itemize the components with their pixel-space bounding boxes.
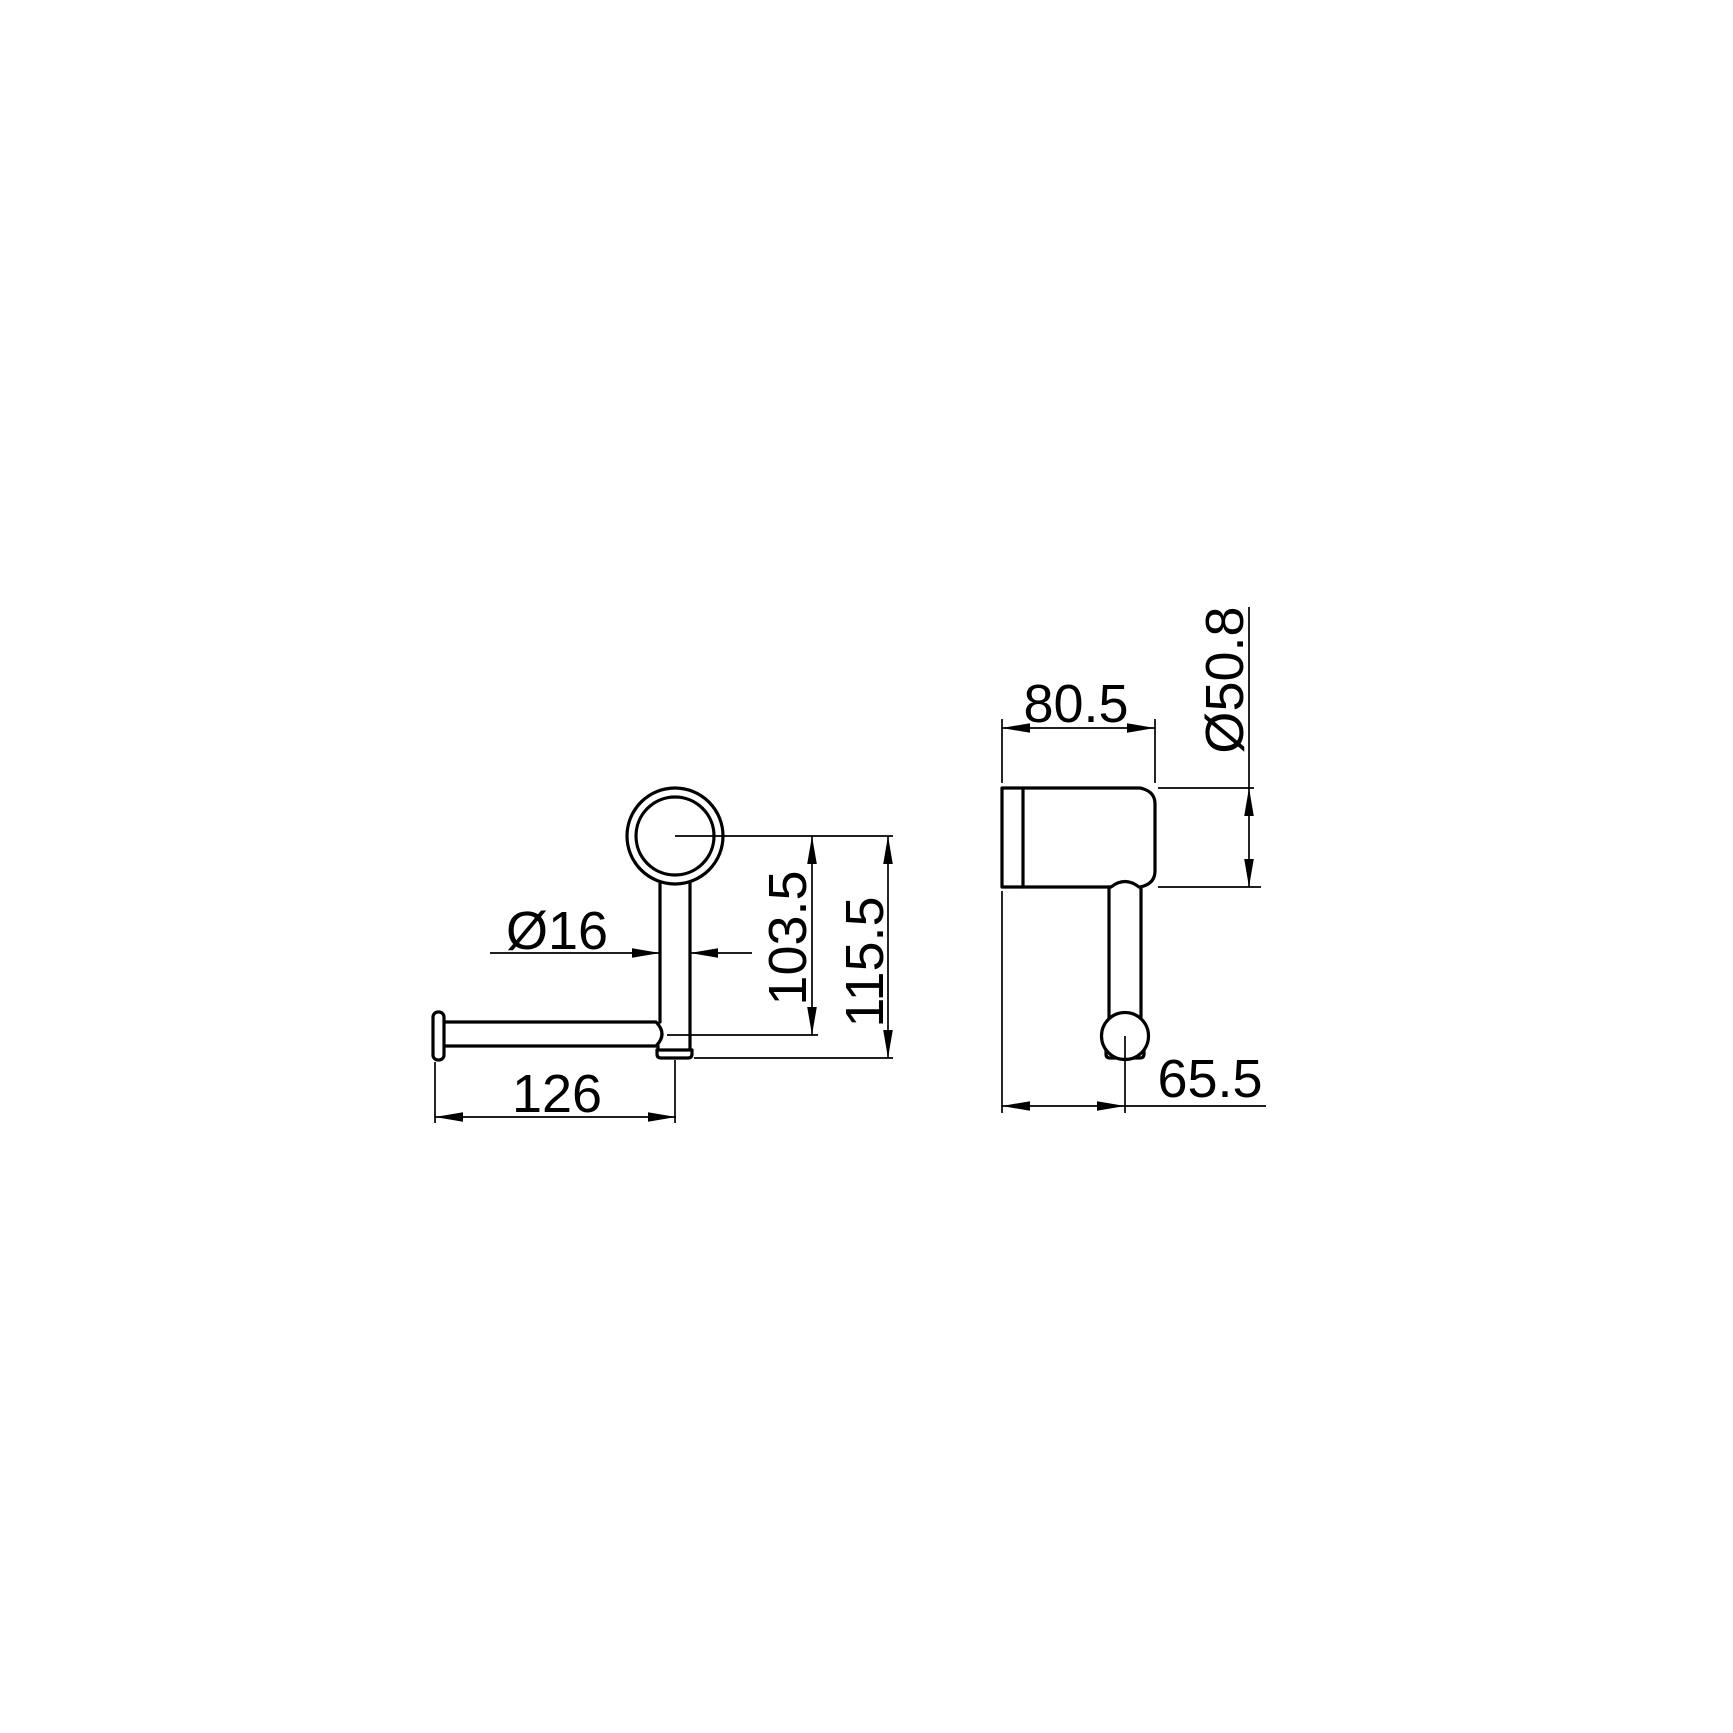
dim-wall-to-bar-axis: 65.5 bbox=[1002, 891, 1266, 1113]
arrowhead-left bbox=[435, 1112, 463, 1122]
dim-depth: 80.5 bbox=[1002, 674, 1155, 783]
arrowhead-down bbox=[883, 1030, 893, 1058]
dim-post-diameter: Ø16 bbox=[490, 901, 752, 961]
technical-drawing: Ø16 103.5 115.5 bbox=[0, 0, 1733, 1733]
dim-label-depth: 80.5 bbox=[1023, 674, 1128, 734]
drawing-canvas: Ø16 103.5 115.5 bbox=[0, 0, 1733, 1733]
arrowhead-up bbox=[883, 836, 893, 864]
dim-label-center-to-bar: 103.5 bbox=[758, 870, 818, 1005]
roll-bar bbox=[444, 1022, 662, 1046]
holder-body bbox=[1002, 788, 1155, 887]
dim-plate-diameter: Ø50.8 bbox=[1158, 606, 1261, 887]
dim-label-plate-diameter: Ø50.8 bbox=[1195, 606, 1255, 753]
arrowhead-down bbox=[1244, 859, 1254, 887]
arrowhead-down bbox=[807, 1007, 817, 1035]
side-view: 80.5 Ø50.8 65.5 bbox=[1002, 606, 1266, 1113]
post-bottom-collar bbox=[657, 1050, 692, 1058]
arrowhead-right bbox=[648, 1112, 676, 1122]
arrowhead-up bbox=[1244, 788, 1254, 816]
arrowhead-left bbox=[1002, 1101, 1030, 1111]
dim-label-wall-to-bar-axis: 65.5 bbox=[1157, 1049, 1262, 1109]
bar-end-cap bbox=[433, 1012, 444, 1060]
arrowhead-right bbox=[1127, 723, 1155, 733]
dim-label-post-diameter: Ø16 bbox=[506, 901, 608, 961]
arrowhead-left bbox=[690, 948, 718, 958]
dim-label-center-to-bottom: 115.5 bbox=[835, 896, 895, 1027]
dim-label-bar-length: 126 bbox=[512, 1064, 602, 1124]
dim-bar-length: 126 bbox=[435, 1060, 676, 1124]
arrowhead-right bbox=[1097, 1101, 1125, 1111]
arrowhead-right bbox=[632, 948, 660, 958]
front-view: Ø16 103.5 115.5 bbox=[433, 788, 895, 1124]
arrowhead-up bbox=[807, 836, 817, 864]
